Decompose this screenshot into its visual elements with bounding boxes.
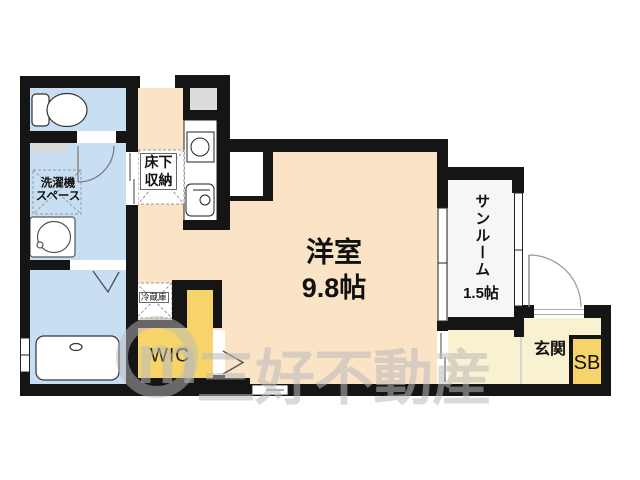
- washer-space-line2: スペース: [36, 190, 81, 203]
- wall: [126, 76, 138, 152]
- washbasin-tap-icon: [37, 242, 43, 248]
- bathtub-icon: [36, 336, 119, 380]
- washbasin-bowl-icon: [38, 222, 71, 253]
- storage-niche: [230, 152, 263, 196]
- refrigerator-label: 冷蔵庫: [139, 292, 169, 303]
- wall: [20, 76, 30, 338]
- stove-burner-icon: [191, 138, 209, 156]
- washer-space-line1: 洗濯機: [36, 177, 81, 190]
- underfloor-storage-label: 床下 収納: [140, 153, 177, 190]
- toilet-bowl-icon: [47, 94, 87, 127]
- wall: [437, 321, 448, 331]
- washroom-sliding-door: [126, 152, 138, 205]
- kitchen-unit: [184, 120, 217, 222]
- wall: [28, 131, 77, 143]
- main-room-sliding-door: [437, 331, 448, 384]
- pipe-space: [190, 88, 220, 110]
- bathtub-drain-icon: [70, 344, 82, 351]
- toilet-shelf: [32, 143, 67, 152]
- wall: [183, 85, 190, 112]
- wall: [520, 305, 534, 318]
- main-room-window: [438, 208, 447, 321]
- underfloor-storage-line1: 床下: [141, 154, 176, 172]
- wall: [228, 139, 448, 152]
- kitchen-drain-icon: [200, 195, 210, 205]
- wall: [187, 280, 213, 290]
- shoe-box-label: SB: [574, 352, 601, 374]
- wic-label: WIC: [150, 347, 190, 368]
- wall: [116, 131, 126, 143]
- wall: [263, 139, 273, 201]
- wall: [183, 110, 220, 120]
- wall: [437, 147, 448, 208]
- wall: [20, 260, 70, 270]
- wall: [448, 317, 524, 330]
- entrance-label: 玄関: [534, 341, 566, 359]
- wall: [512, 167, 524, 193]
- wall: [213, 375, 225, 384]
- sunroom-size: 1.5帖: [463, 286, 499, 303]
- wall: [213, 280, 222, 328]
- sunroom-label: サンルーム: [473, 194, 490, 279]
- bath-door-opening: [70, 260, 122, 270]
- wall: [183, 220, 230, 230]
- entrance-door-opening: [534, 305, 584, 318]
- toilet-door-opening: [77, 131, 116, 143]
- wall: [20, 76, 140, 88]
- wall: [20, 384, 611, 396]
- main-room-size: 9.8帖: [302, 274, 367, 304]
- wall: [228, 196, 264, 201]
- main-room-label: 洋室: [306, 238, 362, 269]
- wall: [601, 305, 611, 396]
- floor-plan: 洋室 9.8帖 サンルーム 1.5帖 玄関 SB WIC 冷蔵庫 床下 収納 洗…: [0, 0, 640, 480]
- hallway-floor: [448, 329, 523, 384]
- washer-space-label: 洗濯機 スペース: [36, 177, 81, 202]
- underfloor-storage-line2: 収納: [141, 172, 176, 190]
- wic-floor-upper: [187, 290, 213, 330]
